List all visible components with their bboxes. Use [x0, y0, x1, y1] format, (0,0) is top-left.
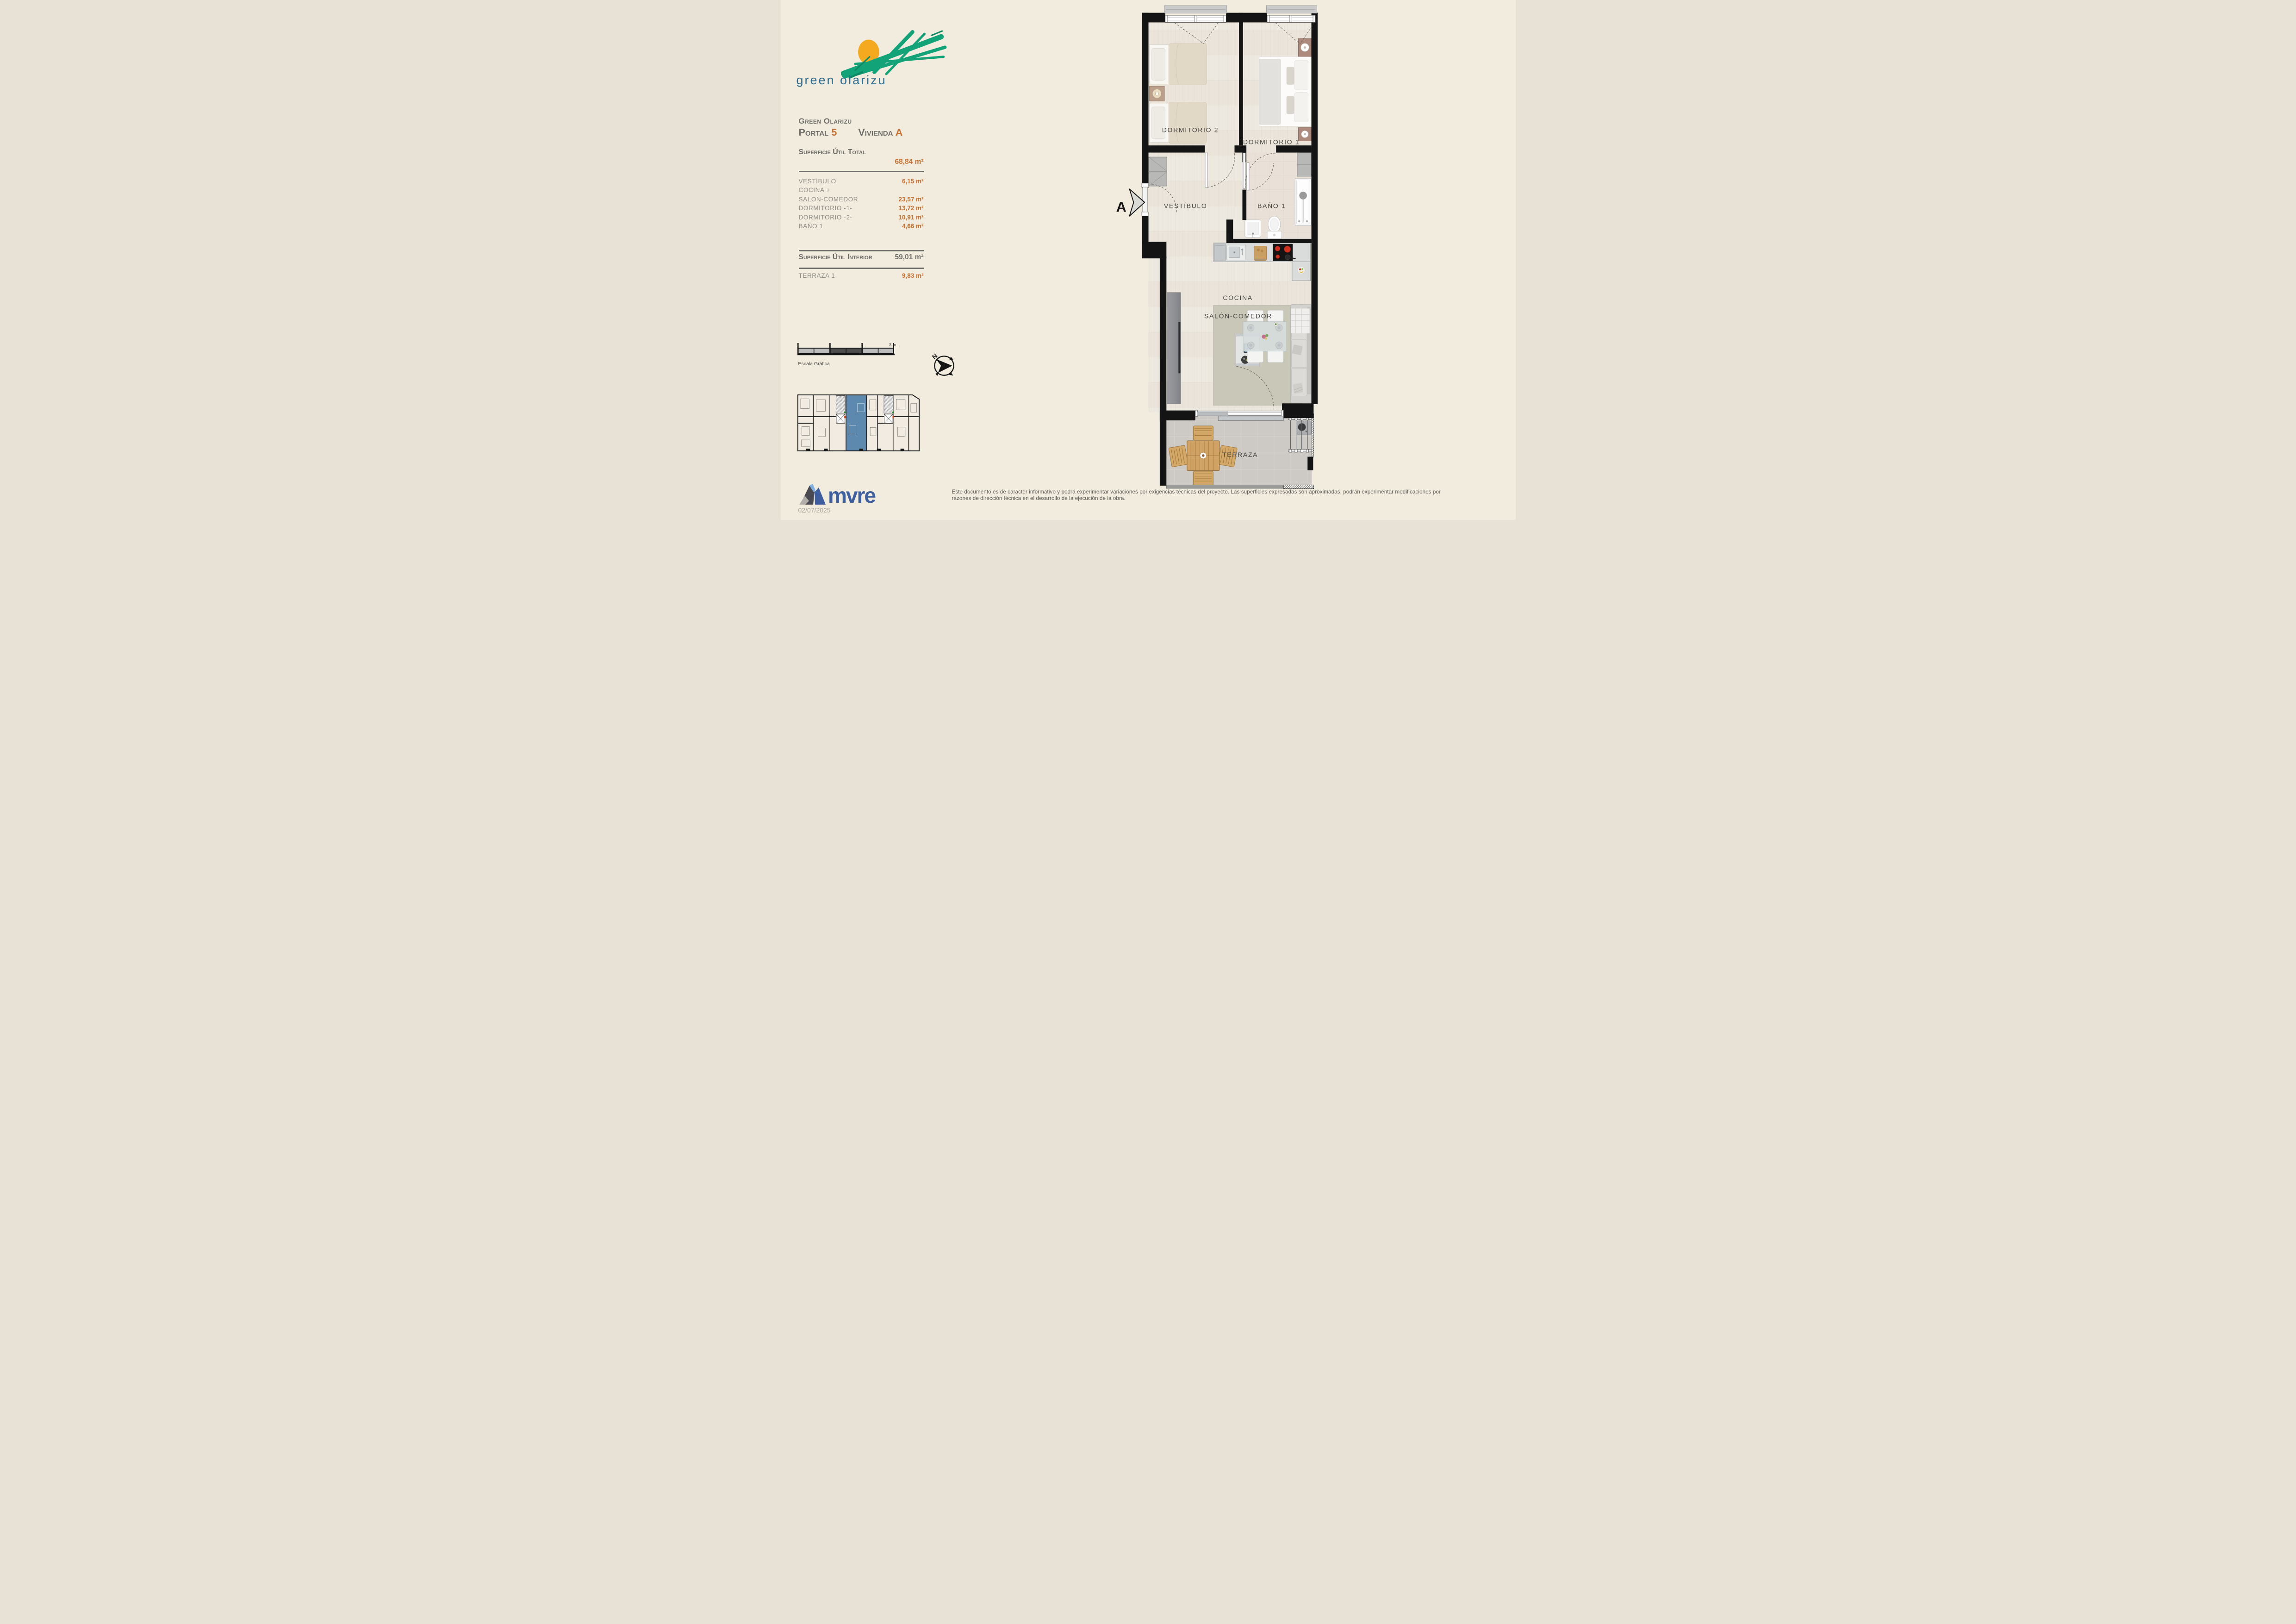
terraza-row: TERRAZA 1 9,83 m²	[799, 272, 924, 279]
disclaimer-text: Este documento es de caracter informativ…	[952, 489, 1515, 502]
scale-tick-1: 1	[828, 343, 831, 348]
sofa-pillow	[1292, 344, 1303, 356]
dorm2-bed-2	[1149, 102, 1207, 144]
scale-bar: 1 2 3 m.	[797, 343, 896, 362]
orange-door-marker	[892, 416, 894, 418]
row-label: BAÑO 1	[799, 223, 823, 230]
cutting-board-icon	[1254, 246, 1266, 260]
dining-chair	[1247, 350, 1263, 362]
surface-total-value: 68,84 m²	[799, 158, 925, 166]
terraza-label: TERRAZA 1	[799, 272, 835, 279]
apartment-floor-plan: DORMITORIO 2 DORMITORIO 1 VESTÍBULO BAÑO…	[1116, 5, 1318, 489]
row-label: SALON-COMEDOR	[799, 196, 859, 203]
accent-pillow	[1286, 96, 1294, 114]
label-cocina: COCINA	[1223, 294, 1252, 301]
kitchen-sink-icon	[1226, 245, 1245, 260]
duvet	[1169, 102, 1207, 144]
divider-line	[799, 250, 924, 251]
row-value: 13,72 m²	[898, 205, 923, 212]
pillow	[1151, 48, 1165, 80]
toilet-icon	[1267, 216, 1282, 239]
portal-label: Portal	[799, 127, 829, 138]
disclaimer-line-1: Este documento es de caracter informativ…	[952, 489, 1515, 495]
orange-door-marker	[844, 416, 846, 418]
area-row-bano: BAÑO 14,66 m²	[799, 223, 924, 231]
label-dormitorio-1: DORMITORIO 1	[1243, 138, 1299, 146]
area-row-dorm2: DORMITORIO -2-10,91 m²	[799, 214, 924, 223]
pillow	[1294, 93, 1308, 122]
project-title: Green Olarizu	[799, 117, 925, 126]
row-label: COCINA +	[799, 187, 830, 194]
green-door-marker	[892, 412, 894, 413]
tv-sideboard	[1167, 293, 1180, 404]
dorm1-nightstand-bottom	[1298, 127, 1311, 141]
scale-caption: Escala Gráfica	[798, 361, 830, 367]
pan-icon	[1285, 255, 1290, 260]
accent-pillow	[1286, 67, 1294, 84]
dorm2-nightstand	[1149, 86, 1164, 101]
surface-total-block: Superficie Útil Total 68,84 m²	[799, 148, 925, 166]
dishwasher-icon	[1214, 244, 1225, 261]
label-vestibulo: VESTÍBULO	[1164, 202, 1207, 209]
bathroom-sink-icon	[1244, 220, 1261, 237]
terrace-chair	[1168, 445, 1188, 467]
terrace-chair	[1193, 471, 1213, 486]
sliding-panel	[1218, 416, 1283, 421]
surface-interior-row: Superficie Útil Interior 59,01 m²	[799, 253, 924, 262]
plan-sheet: green olarizu Green Olarizu Portal 5 Viv…	[781, 0, 1516, 520]
north-arrow-icon	[936, 359, 952, 373]
surface-total-label: Superficie Útil Total	[799, 148, 925, 156]
scale-bar-numbers: 1 2 3 m.	[828, 343, 897, 348]
portal-vivienda-line: Portal 5 Vivienda A	[799, 127, 925, 138]
highlighted-unit	[846, 395, 866, 450]
sofa	[1290, 304, 1311, 403]
portal-number: 5	[831, 127, 837, 138]
divider-line	[799, 171, 924, 172]
blanket	[1259, 59, 1280, 125]
vivienda-label: Vivienda	[858, 127, 893, 138]
plan-date: 02/07/2025	[798, 506, 831, 514]
scale-tick-3: 3 m.	[889, 343, 897, 348]
label-dormitorio-2: DORMITORIO 2	[1162, 126, 1218, 133]
row-value: 10,91 m²	[898, 214, 923, 221]
duvet	[1169, 44, 1207, 85]
label-terraza: TERRAZA	[1222, 451, 1258, 458]
green-door-marker	[844, 412, 846, 413]
sliding-panel	[1197, 412, 1228, 416]
vivienda-letter: A	[896, 127, 903, 138]
area-row-vestibulo: VESTÍBULO6,15 m²	[799, 178, 924, 187]
label-bano: BAÑO 1	[1257, 202, 1285, 209]
section-marker-a: A	[1116, 189, 1145, 216]
dorm1-nightstand-top	[1298, 38, 1311, 56]
mvre-wordmark: mvre	[828, 483, 876, 507]
scale-bar-segments	[798, 348, 894, 354]
dining-chair	[1267, 350, 1283, 362]
sofa-pillow	[1292, 383, 1303, 394]
mvre-mountain-navy-icon	[815, 487, 826, 505]
surface-interior-label: Superficie Útil Interior	[799, 253, 872, 262]
compass-icon: N	[930, 351, 958, 380]
row-label: DORMITORIO -2-	[799, 214, 852, 221]
row-value: 4,66 m²	[902, 223, 924, 230]
area-rows: VESTÍBULO6,15 m² COCINA + SALON-COMEDOR2…	[799, 178, 924, 231]
entry-door-leaf	[1142, 187, 1147, 212]
row-value: 23,57 m²	[898, 196, 923, 203]
header-block: Green Olarizu Portal 5 Vivienda A	[799, 117, 925, 138]
mvre-logo: mvre	[799, 483, 908, 506]
parapet-hatched-wall	[1283, 485, 1313, 488]
compass-spike-sw	[935, 373, 939, 376]
disclaimer-line-2: razones de dirección técnica en el desar…	[952, 495, 1515, 502]
cooktop-icon	[1273, 244, 1295, 261]
parapet-hatched-wall	[1312, 414, 1313, 457]
area-row-cocina: COCINA +	[799, 187, 924, 195]
scale-tick-2: 2	[861, 343, 863, 348]
throw-blanket	[1291, 308, 1309, 333]
green-olarizu-logo-icon	[841, 28, 948, 79]
fruit-plate-icon	[1298, 267, 1305, 274]
dorm2-bed-1	[1149, 44, 1207, 85]
pillow	[1294, 60, 1308, 90]
area-row-dorm1: DORMITORIO -1-13,72 m²	[799, 205, 924, 213]
row-label: DORMITORIO -1-	[799, 205, 852, 212]
shower-tray	[1295, 178, 1311, 225]
terrace-edge-strip	[1166, 485, 1283, 488]
label-salon-comedor: SALÓN-COMEDOR	[1204, 312, 1272, 320]
surface-interior-value: 59,01 m²	[895, 253, 923, 262]
tv-icon	[1178, 322, 1180, 373]
row-label: VESTÍBULO	[799, 178, 836, 185]
building-overview-plan	[797, 394, 920, 451]
drain-icon	[1299, 192, 1307, 200]
water-heater-icon	[1297, 421, 1311, 435]
terraza-value: 9,83 m²	[902, 272, 924, 279]
pillow	[1151, 107, 1165, 139]
row-value: 6,15 m²	[902, 178, 924, 185]
dorm1-bed	[1259, 56, 1311, 126]
section-marker-letter: A	[1116, 199, 1126, 215]
brand-wordmark: green olarizu	[796, 73, 935, 87]
divider-line	[799, 268, 924, 269]
area-row-salon: SALON-COMEDOR23,57 m²	[799, 196, 924, 205]
